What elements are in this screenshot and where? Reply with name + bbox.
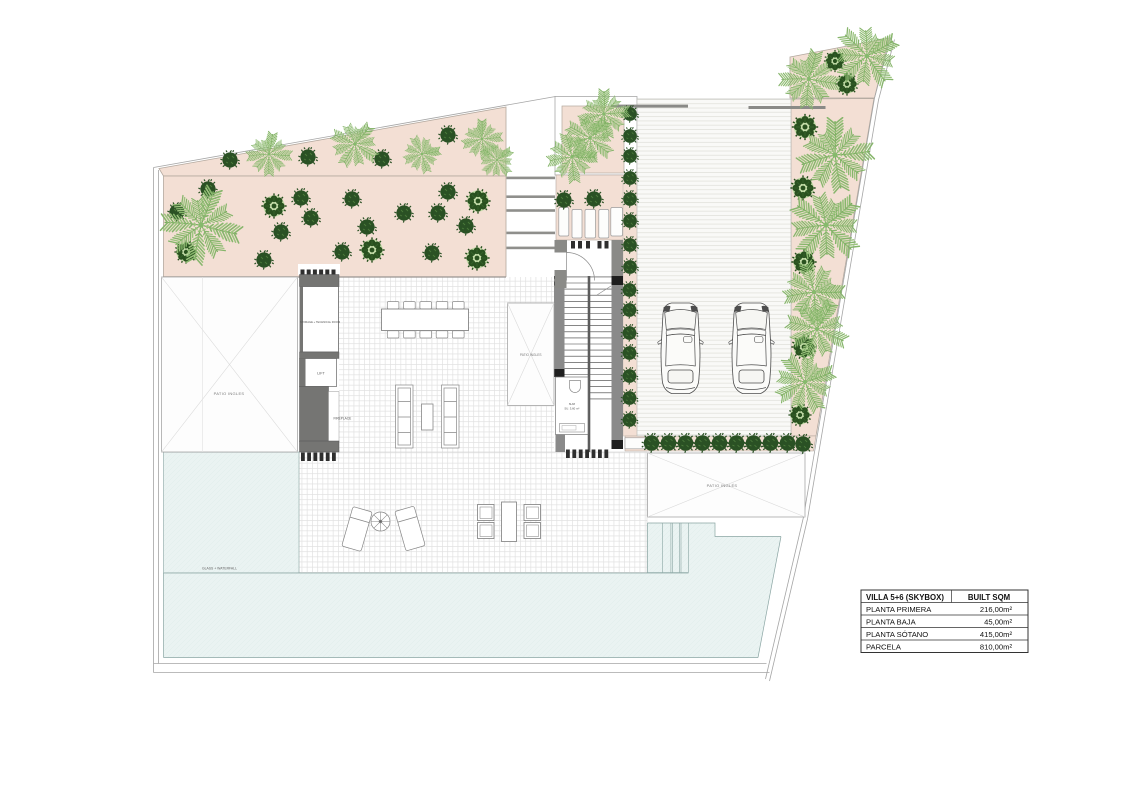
svg-text:810,00m²: 810,00m² bbox=[980, 643, 1013, 652]
svg-text:STORAGE + TECHNICAL ROOM: STORAGE + TECHNICAL ROOM bbox=[300, 320, 341, 324]
svg-text:VILLA 5+6 (SKYBOX): VILLA 5+6 (SKYBOX) bbox=[866, 593, 944, 602]
svg-text:SUM: SUM bbox=[569, 402, 576, 406]
svg-text:PATIO INGLÉS: PATIO INGLÉS bbox=[707, 483, 738, 488]
svg-text:GLASS + WATERFALL: GLASS + WATERFALL bbox=[202, 567, 237, 571]
svg-text:PLANTA PRIMERA: PLANTA PRIMERA bbox=[866, 605, 932, 614]
svg-text:BUILT SQM: BUILT SQM bbox=[968, 593, 1010, 602]
svg-text:PLANTA SÓTANO: PLANTA SÓTANO bbox=[866, 630, 928, 639]
svg-text:415,00m²: 415,00m² bbox=[980, 630, 1013, 639]
svg-text:PATIO INGLES: PATIO INGLES bbox=[214, 391, 245, 396]
svg-text:216,00m²: 216,00m² bbox=[980, 605, 1013, 614]
svg-text:PATIO INGLES: PATIO INGLES bbox=[520, 353, 542, 357]
svg-text:FIREPLACE: FIREPLACE bbox=[334, 417, 352, 421]
svg-text:PLANTA BAJA: PLANTA BAJA bbox=[866, 618, 917, 627]
svg-text:45,00m²: 45,00m² bbox=[984, 618, 1012, 627]
svg-text:SU. 3,60 m²: SU. 3,60 m² bbox=[564, 407, 579, 411]
svg-text:PARCELA: PARCELA bbox=[866, 643, 902, 652]
svg-text:LIFT: LIFT bbox=[317, 372, 325, 376]
